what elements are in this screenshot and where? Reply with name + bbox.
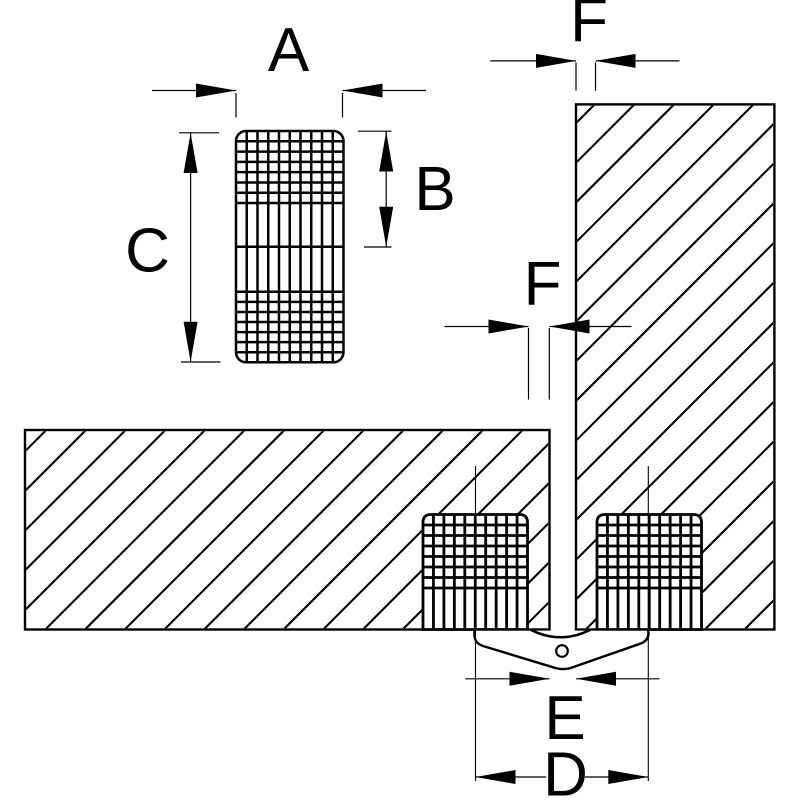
svg-text:A: A — [268, 16, 310, 85]
svg-text:D: D — [543, 741, 588, 801]
svg-text:B: B — [414, 155, 455, 224]
svg-text:C: C — [125, 217, 170, 286]
svg-text:F: F — [524, 250, 562, 319]
svg-text:F: F — [570, 0, 608, 56]
